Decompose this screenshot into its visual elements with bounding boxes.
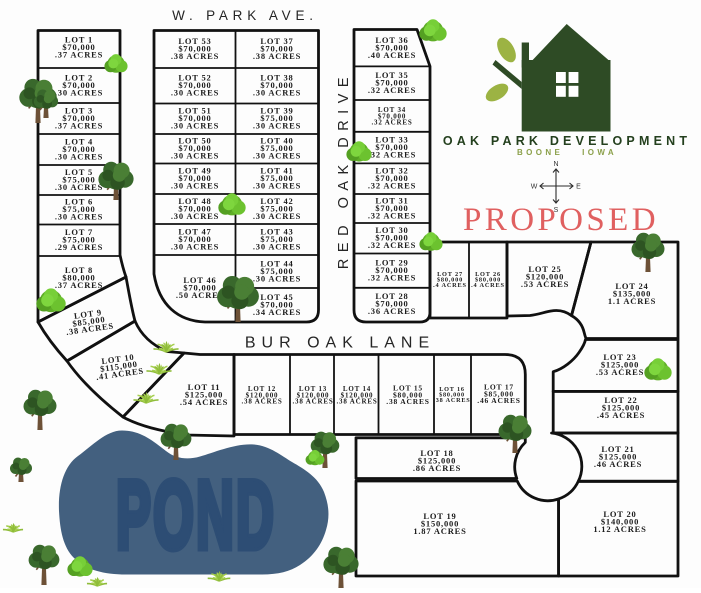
svg-text:LOT 26$80,000.4 ACRES: LOT 26$80,000.4 ACRES: [471, 271, 505, 289]
svg-text:E: E: [576, 184, 581, 191]
svg-text:W. PARK AVE.: W. PARK AVE.: [172, 8, 318, 23]
svg-text:RED OAK DRIVE: RED OAK DRIVE: [336, 71, 352, 269]
svg-text:W: W: [531, 184, 538, 191]
svg-text:LOT 27$80,000.4 ACRES: LOT 27$80,000.4 ACRES: [433, 271, 467, 289]
svg-text:OAK PARK DEVELOPMENT: OAK PARK DEVELOPMENT: [443, 134, 691, 148]
svg-text:BOONE IOWA: BOONE IOWA: [517, 148, 617, 157]
svg-text:PROPOSED: PROPOSED: [463, 202, 659, 238]
svg-text:POND: POND: [116, 460, 276, 570]
svg-text:N: N: [553, 161, 558, 168]
svg-text:BUR OAK LANE: BUR OAK LANE: [245, 335, 435, 352]
